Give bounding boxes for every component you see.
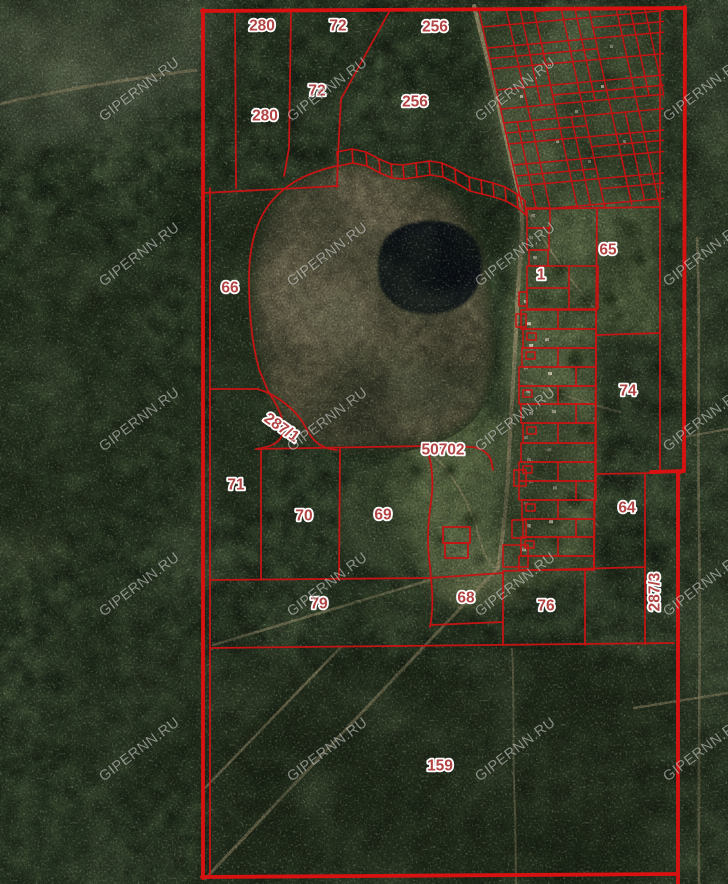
svg-text:76: 76 <box>537 598 555 615</box>
svg-text:159: 159 <box>427 758 453 775</box>
svg-text:65: 65 <box>599 242 617 259</box>
svg-text:69: 69 <box>374 507 392 524</box>
svg-text:1: 1 <box>537 267 546 284</box>
svg-text:256: 256 <box>402 94 428 111</box>
svg-text:50702: 50702 <box>421 442 464 459</box>
svg-text:256: 256 <box>422 19 448 36</box>
svg-text:280: 280 <box>252 108 278 125</box>
svg-text:72: 72 <box>329 18 346 35</box>
svg-text:287/3: 287/3 <box>647 572 664 611</box>
svg-text:64: 64 <box>618 500 636 517</box>
svg-text:68: 68 <box>457 590 475 607</box>
svg-text:280: 280 <box>249 18 275 35</box>
svg-text:66: 66 <box>221 280 239 297</box>
svg-text:70: 70 <box>295 508 312 525</box>
svg-text:74: 74 <box>619 383 637 400</box>
svg-text:71: 71 <box>227 477 245 494</box>
